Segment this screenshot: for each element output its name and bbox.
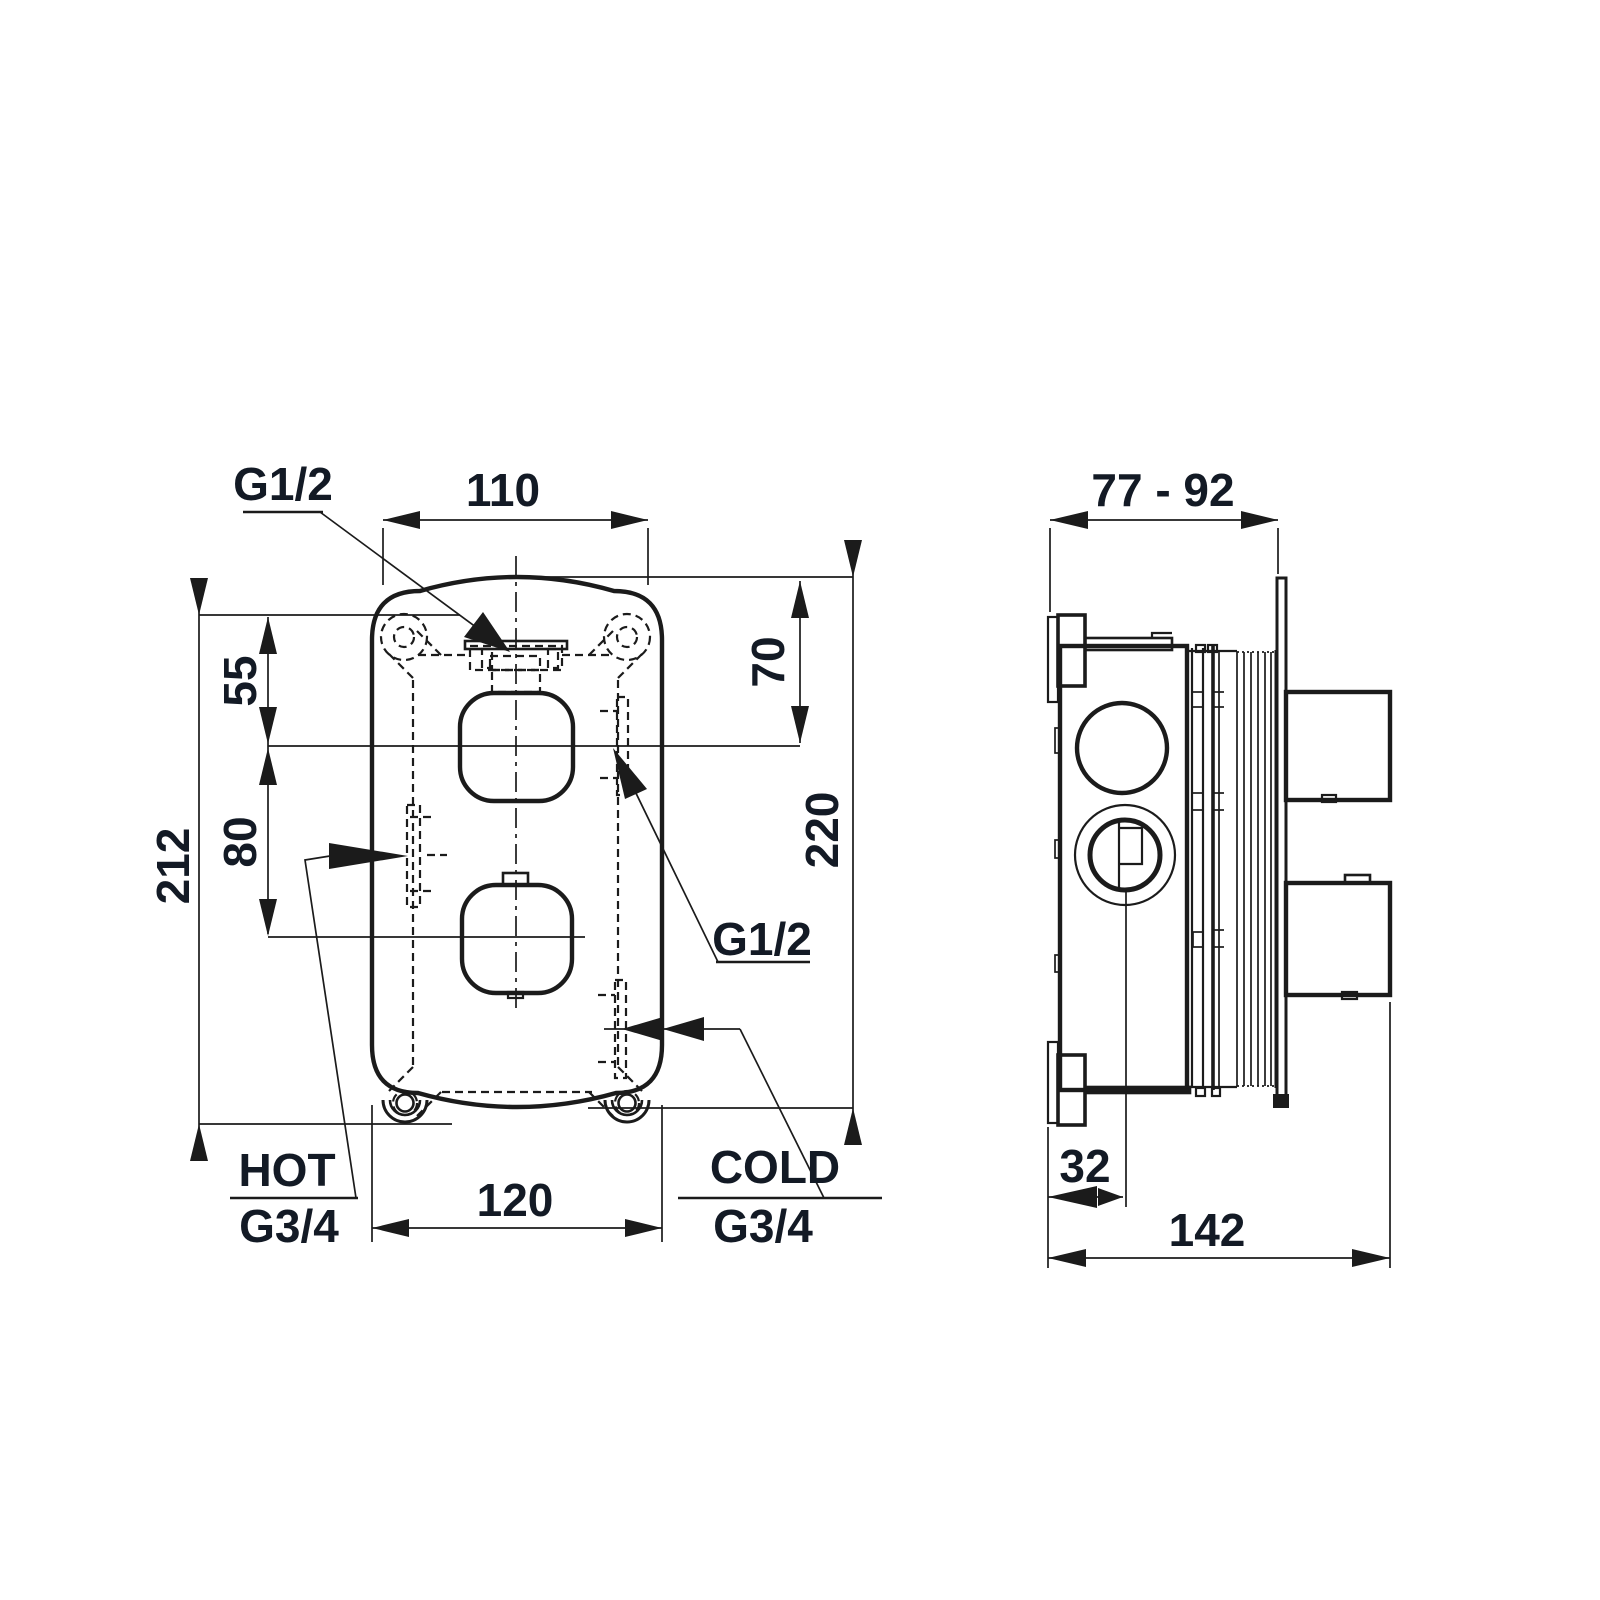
label-outlet-top: G1/2 <box>233 458 333 510</box>
label-cold-thread: G3/4 <box>713 1200 813 1252</box>
dim-center-offset: 32 <box>1059 1140 1110 1192</box>
label-hot: HOT <box>238 1144 335 1196</box>
label-outlet-right: G1/2 <box>712 913 812 965</box>
dim-total-depth: 142 <box>1169 1204 1246 1256</box>
dim-width-top: 110 <box>466 464 540 516</box>
dim-height-left: 212 <box>147 828 199 905</box>
dim-top-offset: 70 <box>742 636 794 687</box>
dim-hole-spacing: 80 <box>214 816 266 867</box>
label-hot-thread: G3/4 <box>239 1200 339 1252</box>
label-cold: COLD <box>710 1141 840 1193</box>
wall-flange-foot <box>1273 1094 1289 1108</box>
drawing-page: 110 G1/2 55 80 212 70 220 120 HOT G3/4 C… <box>0 0 1600 1600</box>
dim-hole-top: 55 <box>214 655 266 706</box>
dim-width-bottom: 120 <box>477 1174 554 1226</box>
dim-depth-range: 77 - 92 <box>1091 464 1234 516</box>
technical-drawing: 110 G1/2 55 80 212 70 220 120 HOT G3/4 C… <box>0 0 1600 1600</box>
dim-height-right: 220 <box>796 792 848 869</box>
